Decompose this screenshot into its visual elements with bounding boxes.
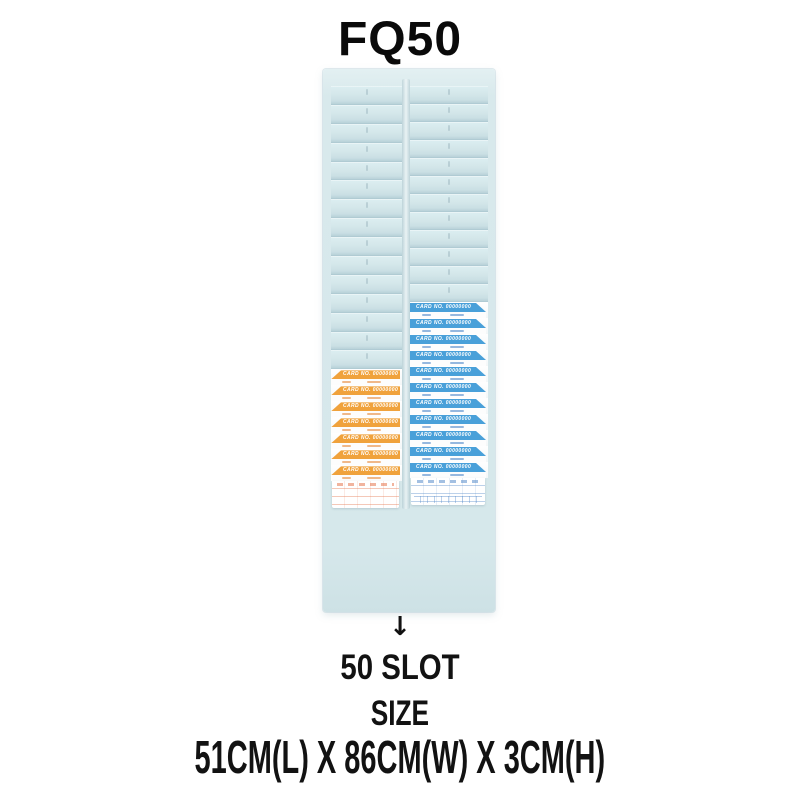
- blue-time-card: CARD NO. 00000000: [410, 398, 488, 414]
- empty-card-slot: [410, 104, 488, 122]
- card-header-text: CARD NO. 00000000: [410, 415, 486, 424]
- card-header-text: CARD NO. 00000000: [410, 399, 486, 408]
- card-header-text: CARD NO. 00000000: [331, 450, 400, 459]
- empty-card-slot: [410, 140, 488, 158]
- blue-time-card: CARD NO. 00000000: [410, 414, 488, 430]
- card-header-band: CARD NO. 00000000: [331, 418, 400, 427]
- card-header-band: CARD NO. 00000000: [410, 335, 486, 344]
- empty-card-slot: [410, 248, 488, 266]
- empty-card-slot: [410, 86, 488, 104]
- empty-card-slot: [331, 256, 402, 275]
- empty-card-slot: [410, 266, 488, 284]
- empty-card-slot: [331, 218, 402, 237]
- empty-card-slot: [331, 143, 402, 162]
- card-header-text: CARD NO. 00000000: [331, 370, 400, 379]
- empty-card-slot: [410, 284, 488, 302]
- blue-time-card: CARD NO. 00000000: [410, 462, 488, 478]
- caption-dimensions-text: 51CM(L) X 86CM(W) X 3CM(H): [195, 730, 606, 784]
- blue-time-card: CARD NO. 00000000: [410, 318, 488, 334]
- orange-time-card: CARD NO. 00000000: [331, 417, 402, 433]
- orange-time-card: CARD NO. 00000000: [331, 433, 402, 449]
- caption-slot-count-text: 50 SLOT: [340, 648, 459, 688]
- empty-card-slot: [331, 86, 402, 105]
- blue-time-card: CARD NO. 00000000: [410, 382, 488, 398]
- empty-card-slot: [331, 105, 402, 124]
- empty-card-slot: [331, 350, 402, 369]
- blue-time-card: CARD NO. 00000000: [410, 350, 488, 366]
- rack-column-right: CARD NO. 00000000CARD NO. 00000000CARD N…: [410, 86, 488, 505]
- empty-card-slot: [410, 230, 488, 248]
- orange-time-card: CARD NO. 00000000: [331, 385, 402, 401]
- card-header-text: CARD NO. 00000000: [331, 418, 400, 427]
- card-header-band: CARD NO. 00000000: [331, 402, 400, 411]
- card-header-text: CARD NO. 00000000: [410, 319, 486, 328]
- card-header-text: CARD NO. 00000000: [331, 402, 400, 411]
- empty-card-slot: [410, 122, 488, 140]
- card-header-band: CARD NO. 00000000: [410, 367, 486, 376]
- blue-time-card: CARD NO. 00000000: [410, 430, 488, 446]
- empty-card-slot: [331, 294, 402, 313]
- card-header-band: CARD NO. 00000000: [331, 434, 400, 443]
- empty-card-slot: [331, 162, 402, 181]
- card-header-band: CARD NO. 00000000: [410, 431, 486, 440]
- card-header-band: CARD NO. 00000000: [331, 466, 400, 475]
- empty-card-slot: [410, 194, 488, 212]
- blue-time-card: CARD NO. 00000000: [410, 334, 488, 350]
- empty-card-slot: [331, 275, 402, 294]
- card-header-band: CARD NO. 00000000: [331, 370, 400, 379]
- empty-card-slot: [331, 332, 402, 351]
- caption-size-label-text: SIZE: [371, 694, 429, 734]
- caption-slot-count: 50 SLOT: [0, 648, 800, 688]
- card-header-band: CARD NO. 00000000: [410, 399, 486, 408]
- blue-time-card: CARD NO. 00000000: [410, 302, 488, 318]
- empty-card-slot: [410, 212, 488, 230]
- card-header-band: CARD NO. 00000000: [410, 463, 486, 472]
- card-header-band: CARD NO. 00000000: [410, 351, 486, 360]
- card-header-text: CARD NO. 00000000: [410, 303, 486, 312]
- product-image: FQ50 CARD NO. 00000000CARD NO. 00000000C…: [0, 0, 800, 800]
- down-arrow-icon: ↓: [0, 614, 800, 640]
- empty-card-slot: [331, 237, 402, 256]
- card-header-band: CARD NO. 00000000: [410, 319, 486, 328]
- card-header-text: CARD NO. 00000000: [410, 447, 486, 456]
- card-header-text: CARD NO. 00000000: [410, 383, 486, 392]
- empty-card-slot: [331, 124, 402, 143]
- card-header-band: CARD NO. 00000000: [410, 415, 486, 424]
- card-header-text: CARD NO. 00000000: [331, 386, 400, 395]
- card-header-text: CARD NO. 00000000: [410, 335, 486, 344]
- card-header-band: CARD NO. 00000000: [331, 450, 400, 459]
- rack-column-left: CARD NO. 00000000CARD NO. 00000000CARD N…: [331, 86, 402, 508]
- caption-dimensions: 51CM(L) X 86CM(W) X 3CM(H): [0, 730, 800, 784]
- empty-card-slot: [410, 176, 488, 194]
- rack-center-divider: [402, 79, 410, 509]
- caption-size-label: SIZE: [0, 694, 800, 734]
- time-card-rack: CARD NO. 00000000CARD NO. 00000000CARD N…: [323, 69, 495, 612]
- empty-card-slot: [410, 158, 488, 176]
- card-header-text: CARD NO. 00000000: [410, 431, 486, 440]
- empty-card-slot: [331, 180, 402, 199]
- card-header-band: CARD NO. 00000000: [410, 303, 486, 312]
- page-title: FQ50: [0, 12, 800, 67]
- card-header-band: CARD NO. 00000000: [410, 447, 486, 456]
- bottom-card-body: [411, 478, 485, 505]
- card-header-text: CARD NO. 00000000: [410, 351, 486, 360]
- card-header-text: CARD NO. 00000000: [331, 434, 400, 443]
- bottom-card-body: [332, 481, 399, 508]
- card-header-text: CARD NO. 00000000: [410, 367, 486, 376]
- empty-card-slot: [331, 199, 402, 218]
- card-header-band: CARD NO. 00000000: [331, 386, 400, 395]
- orange-time-card: CARD NO. 00000000: [331, 369, 402, 385]
- orange-time-card: CARD NO. 00000000: [331, 465, 402, 481]
- blue-time-card: CARD NO. 00000000: [410, 446, 488, 462]
- orange-time-card: CARD NO. 00000000: [331, 401, 402, 417]
- orange-time-card: CARD NO. 00000000: [331, 449, 402, 465]
- card-header-band: CARD NO. 00000000: [410, 383, 486, 392]
- card-header-text: CARD NO. 00000000: [410, 463, 486, 472]
- empty-card-slot: [331, 313, 402, 332]
- blue-time-card: CARD NO. 00000000: [410, 366, 488, 382]
- card-header-text: CARD NO. 00000000: [331, 466, 400, 475]
